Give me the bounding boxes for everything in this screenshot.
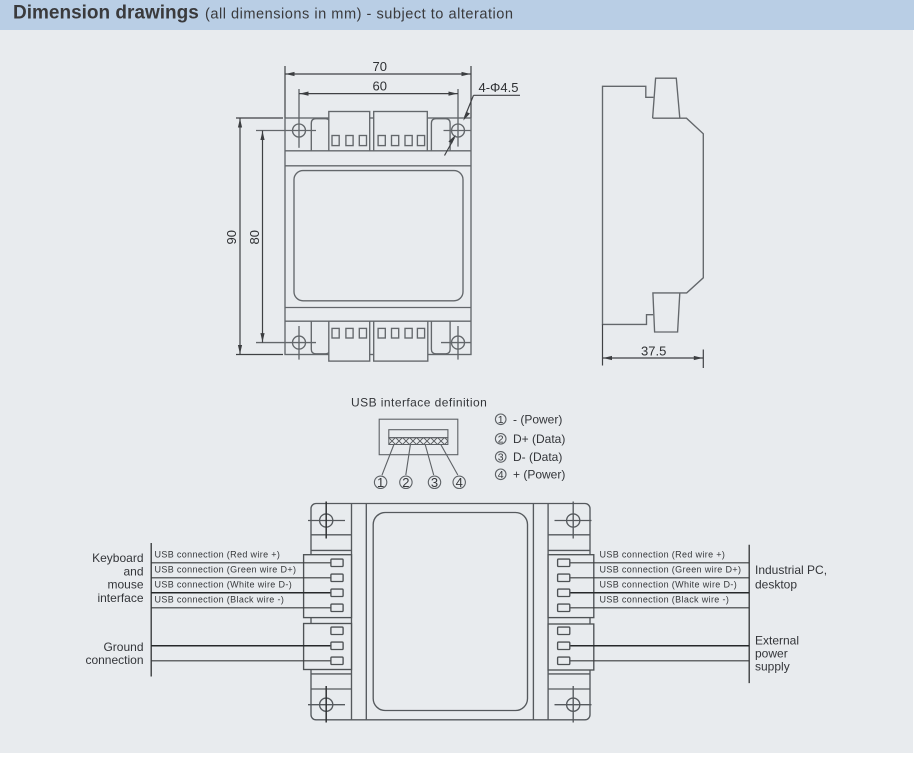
svg-text:1: 1 — [377, 475, 384, 490]
svg-text:USB connection (White wire D-): USB connection (White wire D-) — [600, 580, 738, 590]
svg-text:USB interface definition: USB interface definition — [351, 396, 487, 410]
svg-text:Dimension drawings: Dimension drawings — [13, 3, 199, 24]
svg-text:D+ (Data): D+ (Data) — [513, 432, 565, 446]
svg-text:80: 80 — [247, 230, 262, 244]
svg-text:connection: connection — [85, 653, 143, 667]
svg-text:2: 2 — [402, 475, 409, 490]
svg-text:4: 4 — [498, 469, 504, 481]
svg-text:supply: supply — [755, 660, 790, 674]
svg-text:Ground: Ground — [103, 640, 143, 654]
svg-text:(all dimensions in mm) - subje: (all dimensions in mm) - subject to alte… — [205, 7, 514, 23]
svg-text:- (Power): - (Power) — [513, 413, 562, 427]
svg-text:mouse: mouse — [107, 578, 143, 592]
svg-text:USB connection (Red wire +): USB connection (Red wire +) — [155, 550, 281, 560]
svg-text:37.5: 37.5 — [641, 344, 666, 359]
svg-text:3: 3 — [498, 452, 504, 464]
svg-text:2: 2 — [498, 434, 504, 446]
svg-text:Keyboard: Keyboard — [92, 551, 143, 565]
svg-text:4-Φ4.5: 4-Φ4.5 — [479, 80, 519, 95]
svg-text:1: 1 — [498, 414, 504, 426]
svg-text:3: 3 — [431, 475, 438, 490]
svg-text:90: 90 — [224, 230, 239, 244]
svg-text:power: power — [755, 647, 788, 661]
svg-text:4: 4 — [456, 475, 463, 490]
svg-text:+ (Power): + (Power) — [513, 468, 565, 482]
svg-text:USB connection (Green wire D+): USB connection (Green wire D+) — [155, 565, 297, 575]
svg-text:60: 60 — [373, 79, 387, 94]
svg-text:D- (Data): D- (Data) — [513, 450, 562, 464]
svg-text:Industrial PC,: Industrial PC, — [755, 563, 827, 577]
svg-text:70: 70 — [373, 59, 387, 74]
svg-text:USB connection (Red wire +): USB connection (Red wire +) — [600, 550, 726, 560]
svg-text:USB connection (Green wire D+): USB connection (Green wire D+) — [600, 565, 742, 575]
svg-text:desktop: desktop — [755, 577, 797, 591]
svg-text:USB connection (Black wire -): USB connection (Black wire -) — [600, 595, 730, 605]
svg-text:USB connection (White wire D-): USB connection (White wire D-) — [155, 580, 293, 590]
svg-text:External: External — [755, 634, 799, 648]
svg-text:interface: interface — [97, 591, 143, 605]
svg-text:USB connection (Black wire -): USB connection (Black wire -) — [155, 595, 285, 605]
svg-text:and: and — [123, 564, 143, 578]
